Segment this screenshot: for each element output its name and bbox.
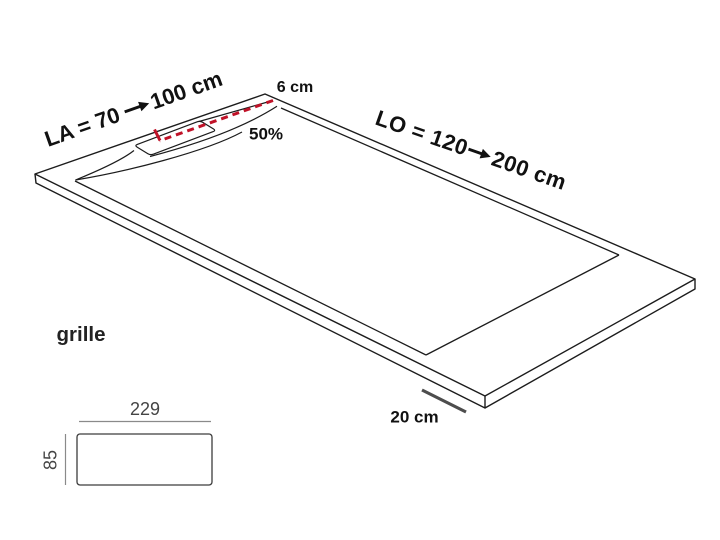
svg-text:200 cm: 200 cm [488, 146, 570, 195]
svg-text:20 cm: 20 cm [390, 408, 438, 427]
svg-text:85: 85 [41, 450, 61, 470]
svg-text:100 cm: 100 cm [147, 66, 226, 114]
svg-text:229: 229 [130, 399, 160, 419]
svg-text:LO = 120: LO = 120 [372, 105, 471, 160]
svg-text:grille: grille [57, 323, 106, 346]
svg-text:6 cm: 6 cm [277, 79, 313, 96]
svg-text:LA = 70: LA = 70 [41, 102, 123, 152]
svg-text:50%: 50% [249, 125, 283, 144]
